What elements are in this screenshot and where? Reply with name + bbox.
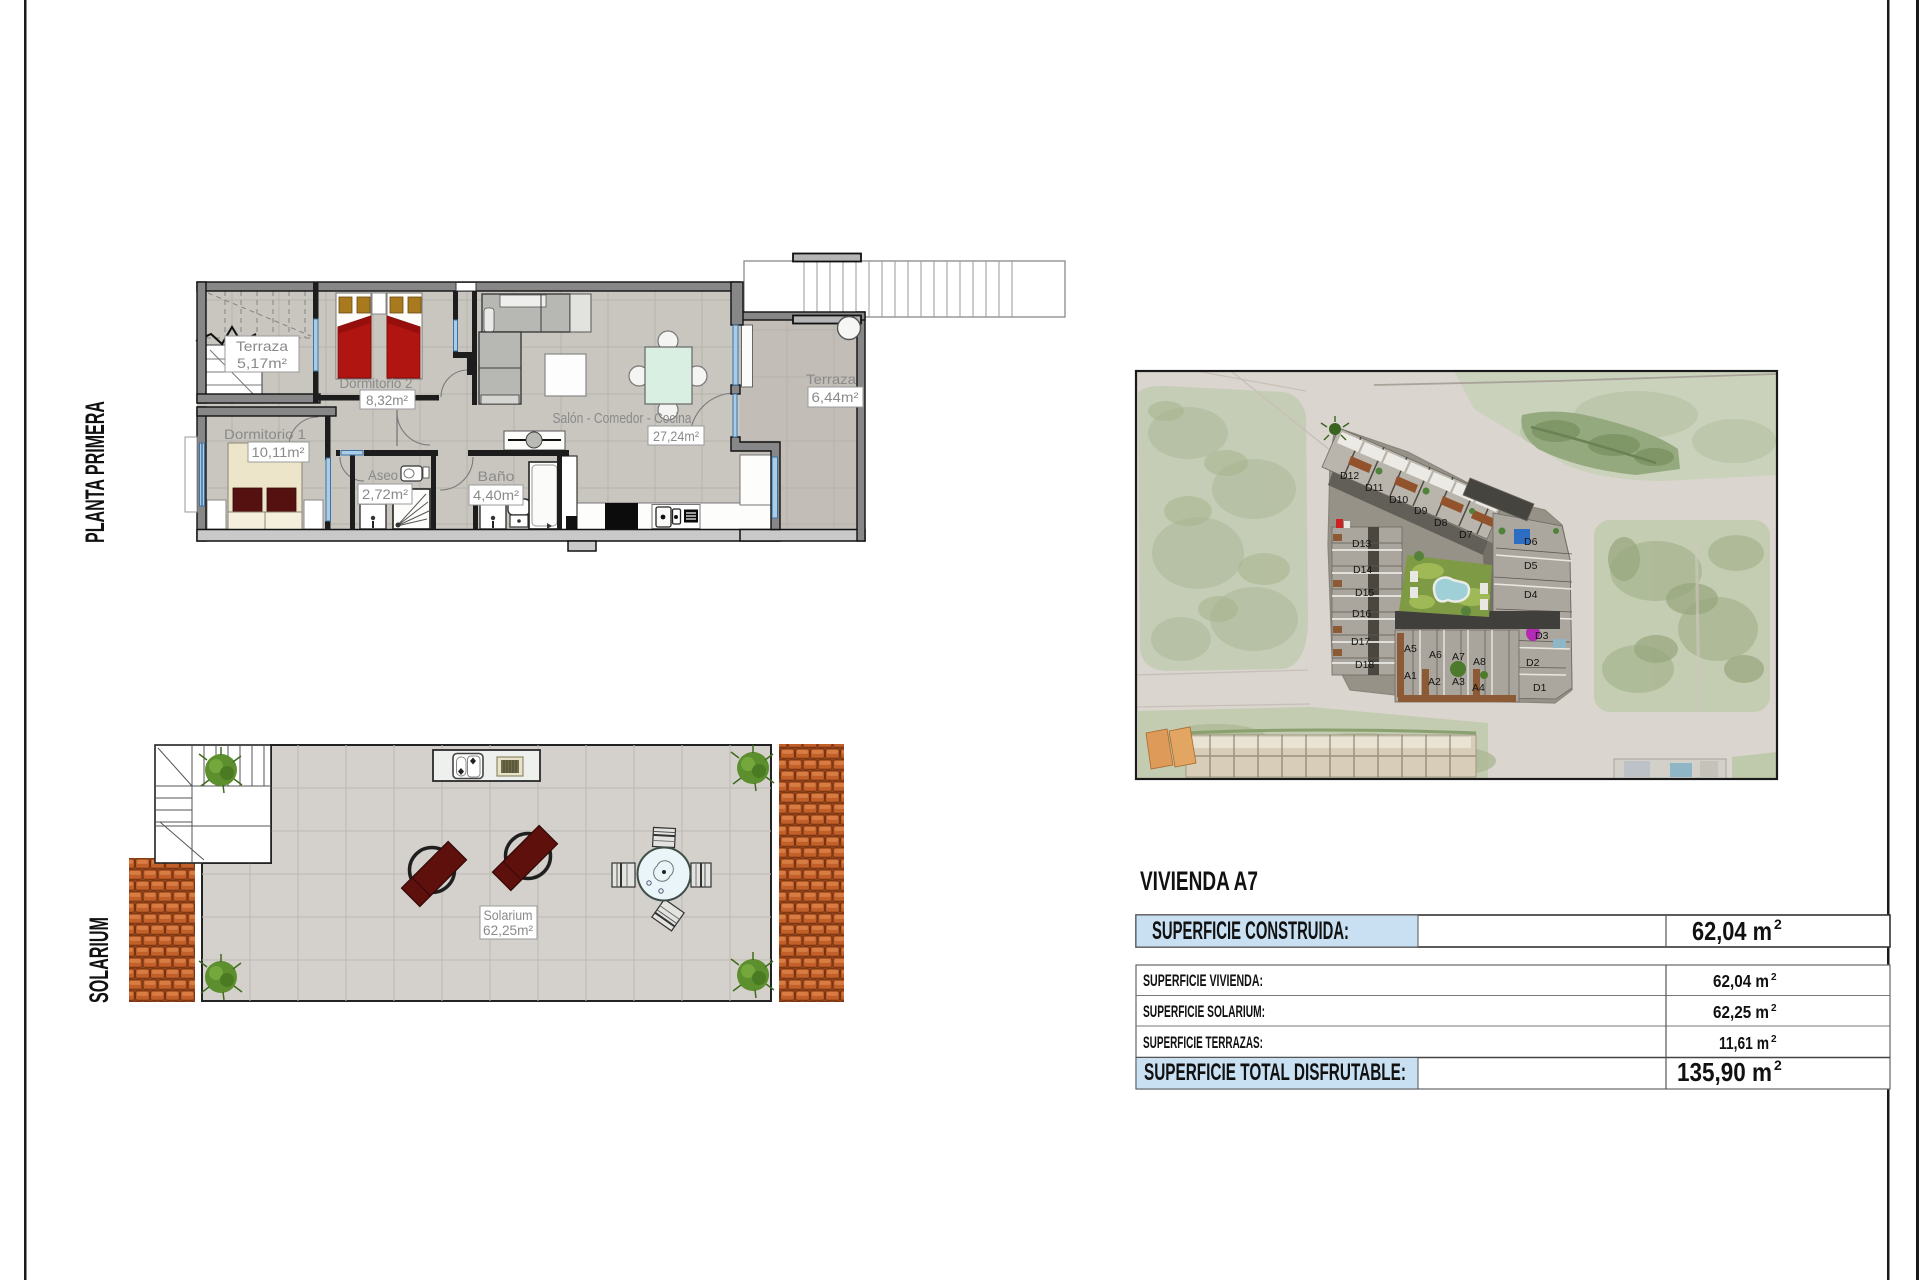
svg-text:D10: D10 [1389, 494, 1408, 506]
svg-text:SUPERFICIE TOTAL DISFRUTABLE:: SUPERFICIE TOTAL DISFRUTABLE: [1144, 1059, 1406, 1086]
svg-text:SUPERFICIE VIVIENDA:: SUPERFICIE VIVIENDA: [1143, 971, 1263, 990]
svg-text:Dormitorio 1: Dormitorio 1 [224, 426, 306, 442]
svg-text:135,90 m: 135,90 m [1677, 1057, 1772, 1087]
svg-text:D4: D4 [1524, 589, 1538, 601]
svg-text:8,32m²: 8,32m² [366, 392, 408, 408]
svg-text:6,44m²: 6,44m² [812, 389, 859, 405]
svg-text:PLANTA PRIMERA: PLANTA PRIMERA [80, 401, 110, 543]
svg-text:5,17m²: 5,17m² [237, 355, 287, 371]
svg-text:Solarium: Solarium [484, 908, 533, 923]
svg-text:Baño: Baño [478, 469, 515, 484]
svg-text:SUPERFICIE CONSTRUIDA:: SUPERFICIE CONSTRUIDA: [1152, 917, 1349, 945]
svg-text:Terraza: Terraza [236, 338, 288, 354]
svg-text:2: 2 [1771, 972, 1777, 983]
svg-text:11,61 m: 11,61 m [1719, 1033, 1769, 1053]
svg-text:62,25m²: 62,25m² [483, 923, 534, 938]
svg-text:D14: D14 [1353, 564, 1372, 576]
svg-text:Terraza: Terraza [806, 371, 856, 387]
svg-text:SUPERFICIE TERRAZAS:: SUPERFICIE TERRAZAS: [1143, 1033, 1263, 1052]
svg-text:SUPERFICIE SOLARIUM:: SUPERFICIE SOLARIUM: [1143, 1002, 1265, 1021]
svg-text:Aseo: Aseo [368, 468, 398, 483]
svg-text:A3: A3 [1452, 676, 1465, 688]
svg-text:62,04 m: 62,04 m [1692, 916, 1772, 946]
svg-text:2: 2 [1771, 1034, 1777, 1045]
svg-text:D13: D13 [1352, 538, 1371, 550]
svg-text:A8: A8 [1473, 656, 1486, 668]
svg-text:D1: D1 [1533, 682, 1547, 694]
svg-text:D9: D9 [1414, 505, 1428, 517]
svg-text:A1: A1 [1404, 670, 1417, 682]
svg-text:A2: A2 [1428, 676, 1441, 688]
svg-text:10,11m²: 10,11m² [252, 444, 305, 460]
svg-text:2: 2 [1774, 1057, 1782, 1073]
svg-text:A4: A4 [1472, 682, 1485, 694]
svg-text:A5: A5 [1404, 643, 1417, 655]
svg-text:D15: D15 [1355, 587, 1374, 599]
svg-text:62,25 m: 62,25 m [1713, 1002, 1769, 1022]
svg-text:D11: D11 [1365, 482, 1384, 494]
svg-text:D6: D6 [1524, 536, 1538, 548]
svg-text:Salón - Comedor - Cocina: Salón - Comedor - Cocina [553, 411, 693, 427]
svg-text:D8: D8 [1434, 517, 1448, 529]
svg-text:A6: A6 [1429, 649, 1442, 661]
svg-text:4,40m²: 4,40m² [473, 487, 519, 503]
svg-text:2,72m²: 2,72m² [362, 486, 408, 502]
svg-text:D18: D18 [1355, 659, 1374, 671]
svg-text:D16: D16 [1352, 608, 1371, 620]
svg-text:62,04 m: 62,04 m [1713, 971, 1769, 991]
svg-text:D17: D17 [1351, 636, 1370, 648]
svg-text:VIVIENDA A7: VIVIENDA A7 [1140, 866, 1258, 896]
svg-text:2: 2 [1774, 916, 1782, 932]
svg-text:D5: D5 [1524, 560, 1538, 572]
svg-text:D2: D2 [1526, 657, 1540, 669]
svg-text:SOLARIUM: SOLARIUM [84, 917, 114, 1003]
svg-text:D3: D3 [1535, 630, 1549, 642]
svg-text:A7: A7 [1452, 651, 1465, 663]
svg-text:27,24m²: 27,24m² [653, 428, 699, 444]
svg-text:D12: D12 [1340, 470, 1359, 482]
svg-text:D7: D7 [1459, 529, 1473, 541]
svg-text:Dormitorio 2: Dormitorio 2 [340, 375, 413, 391]
svg-text:2: 2 [1771, 1003, 1777, 1014]
